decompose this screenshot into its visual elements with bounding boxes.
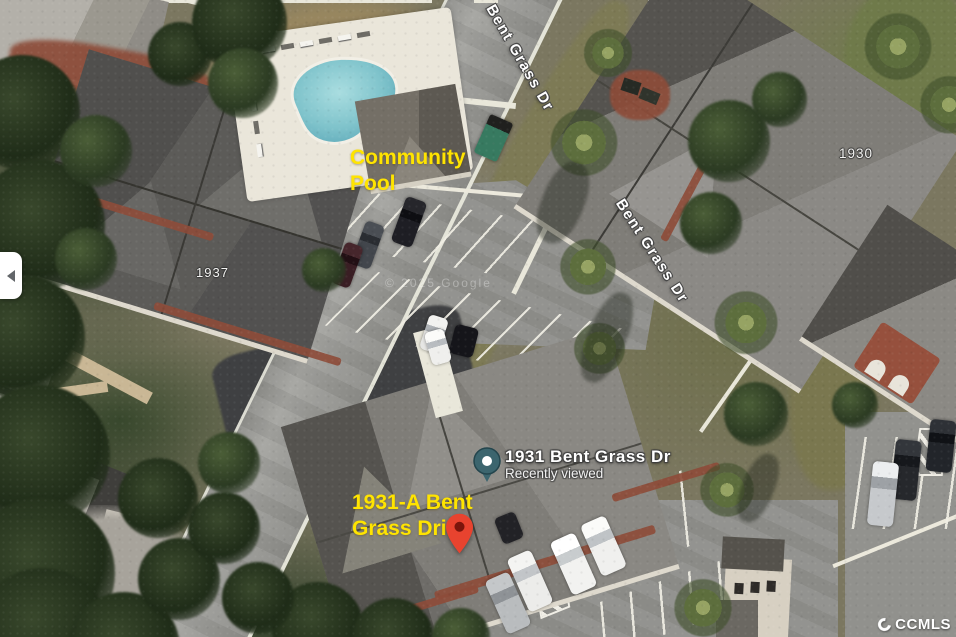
palm-tree xyxy=(712,290,780,358)
palm-tree xyxy=(558,238,618,298)
tree xyxy=(222,562,294,634)
recent-pin-subtitle: Recently viewed xyxy=(505,466,603,481)
house-number-1937: 1937 xyxy=(196,265,229,280)
imagery-watermark: © 2025 Google xyxy=(385,276,492,290)
tree xyxy=(118,458,198,538)
palm-tree xyxy=(862,12,934,84)
tree xyxy=(302,248,346,292)
tree xyxy=(752,72,807,127)
chevron-left-icon xyxy=(7,270,15,282)
tree xyxy=(724,382,788,446)
building-roof xyxy=(721,536,785,571)
tree xyxy=(188,492,260,564)
house-number-1930: 1930 xyxy=(839,146,873,161)
ccmls-watermark-text: CCMLS xyxy=(895,616,951,633)
community-pool-annotation: Community Pool xyxy=(350,145,466,197)
tree xyxy=(60,115,132,187)
recent-pin-title[interactable]: 1931 Bent Grass Dr xyxy=(505,447,671,467)
ccmls-watermark: CCMLS xyxy=(878,616,951,633)
palm-tree xyxy=(582,28,634,80)
tree xyxy=(832,382,878,428)
tree xyxy=(55,228,117,290)
palm-tree xyxy=(672,578,734,637)
satellite-map-canvas[interactable]: © 2025 Google Bent Grass Dr Bent Grass D… xyxy=(0,0,956,637)
tree xyxy=(680,192,742,254)
side-panel-collapse-button[interactable] xyxy=(0,252,22,299)
map-pin-icon xyxy=(446,513,473,554)
tree xyxy=(208,48,278,118)
tree xyxy=(198,432,260,494)
recent-place-pin-icon[interactable] xyxy=(472,446,502,484)
parked-car xyxy=(925,419,956,473)
ccmls-crescent-logo-icon xyxy=(876,615,894,633)
